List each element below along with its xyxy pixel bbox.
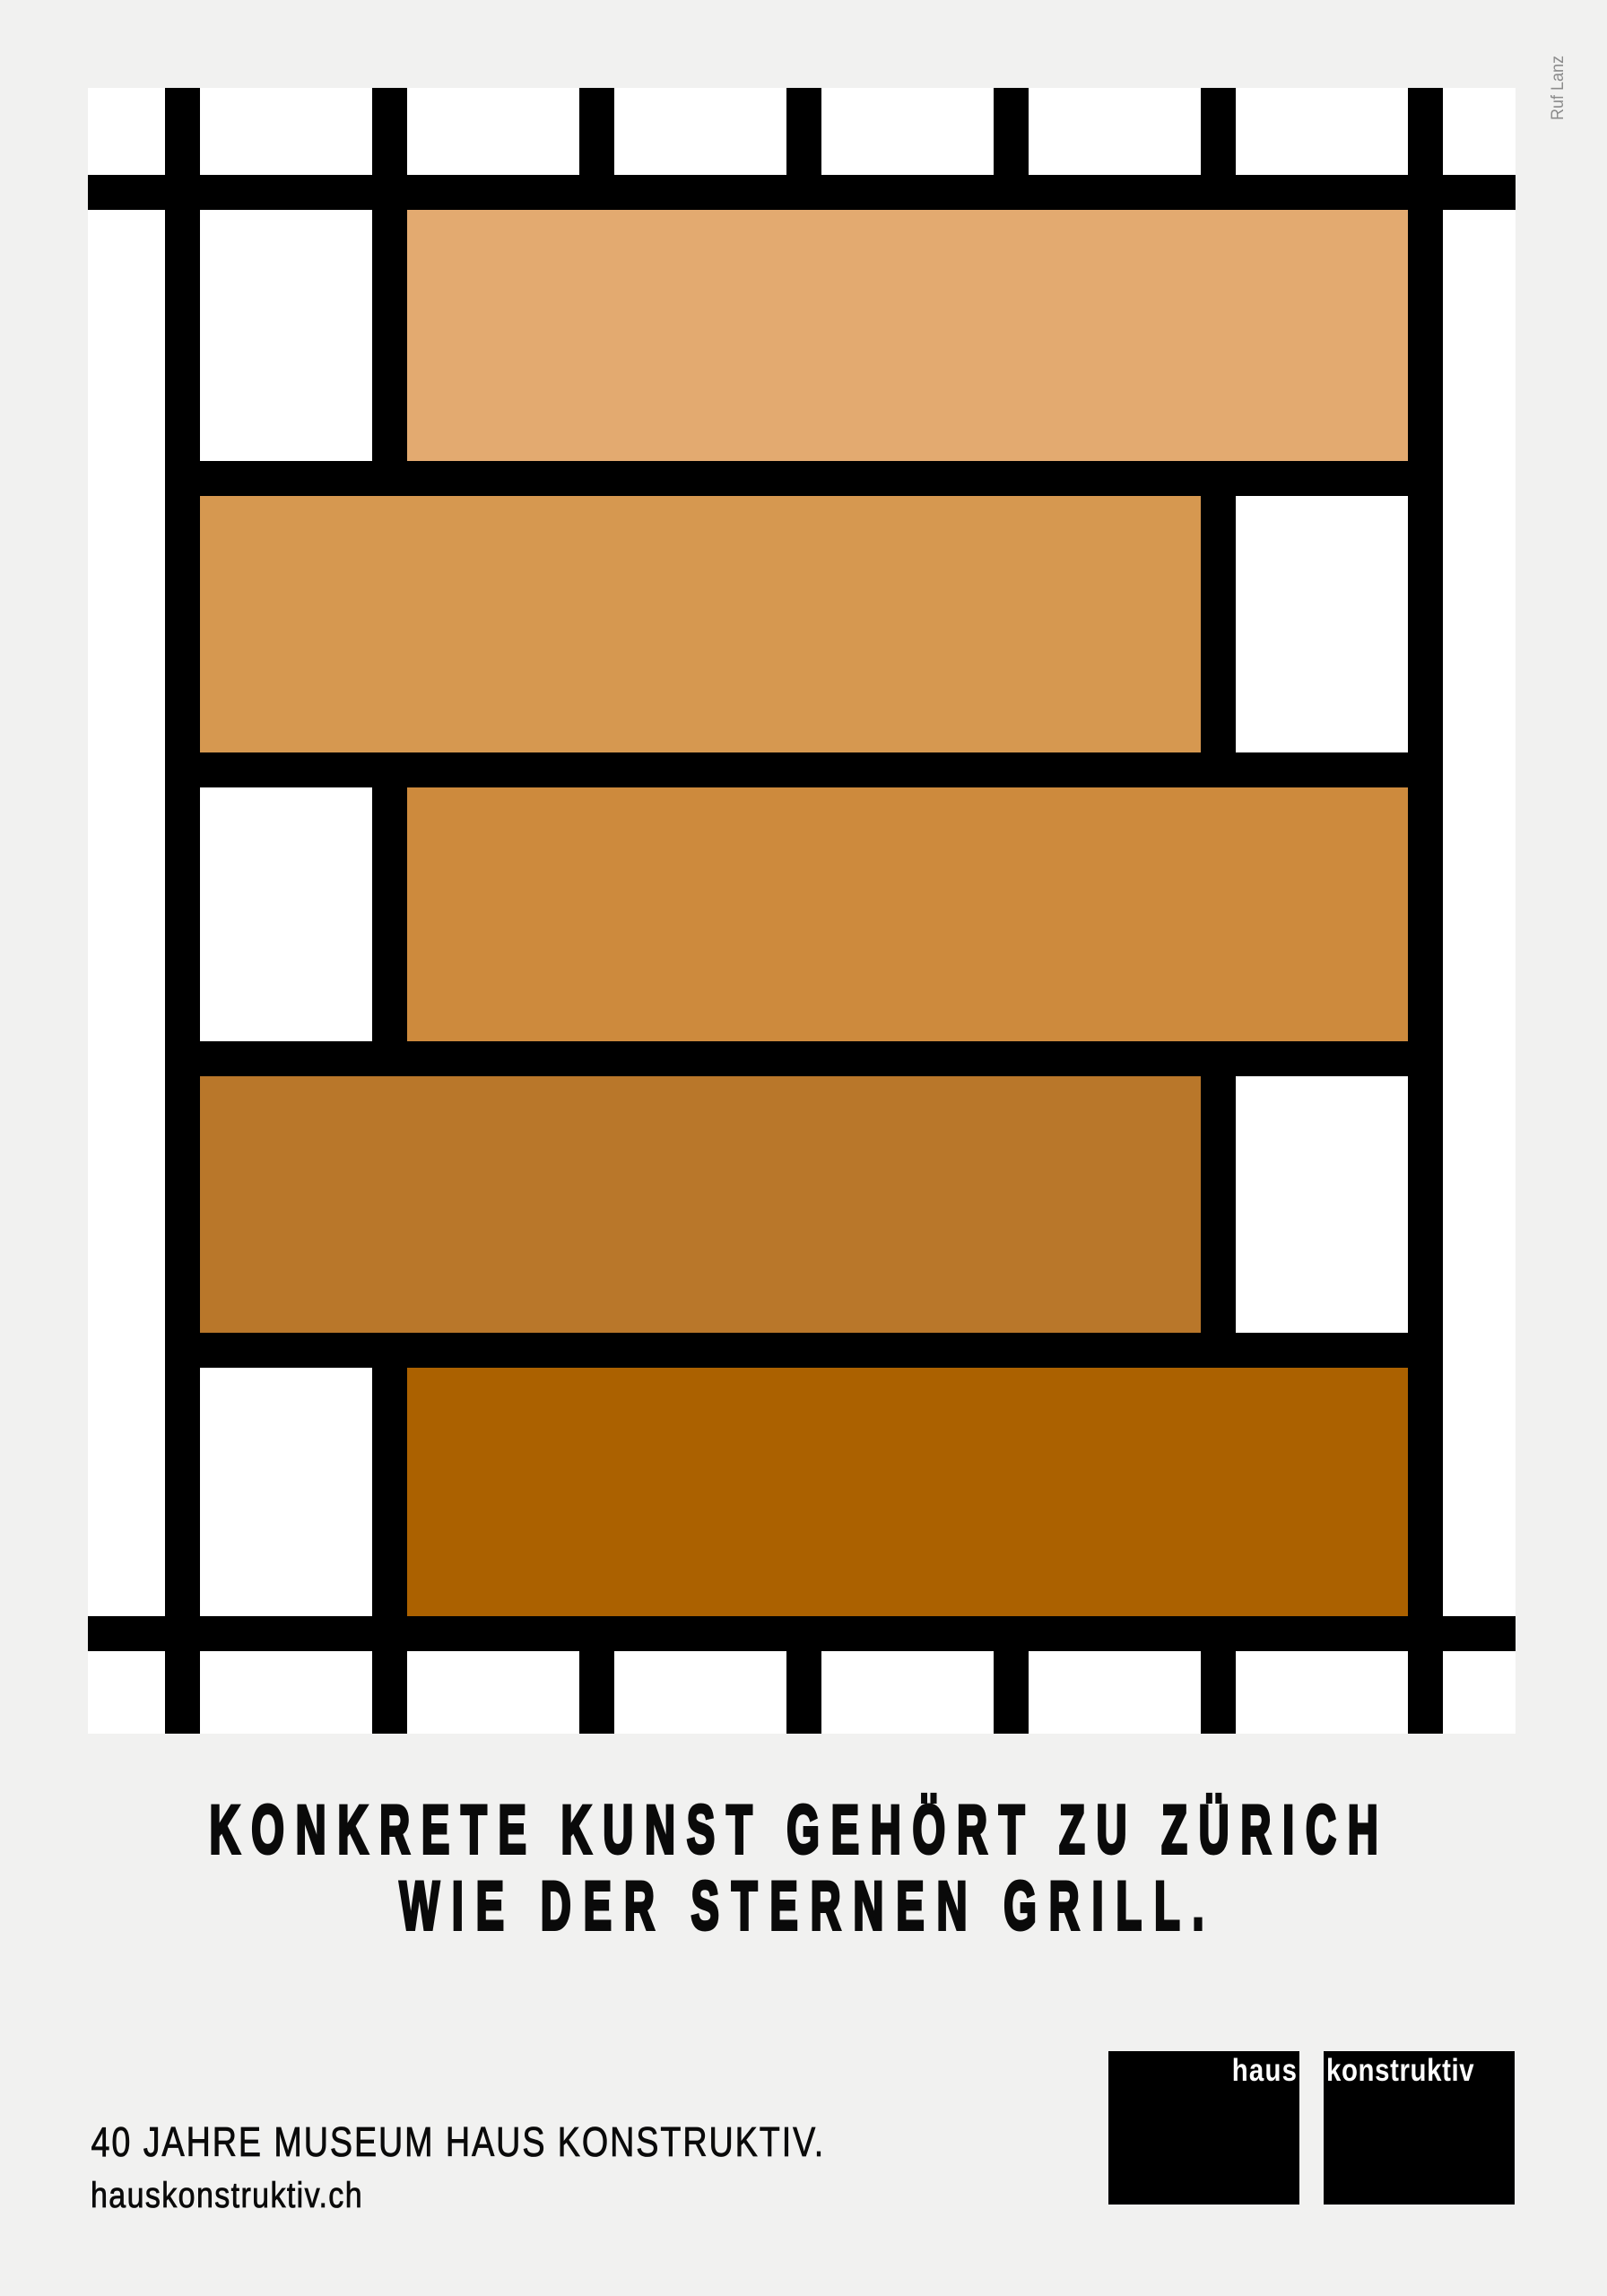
svg-text:haus: haus xyxy=(1232,2053,1297,2088)
svg-text:konstruktiv: konstruktiv xyxy=(1326,2053,1474,2088)
svg-text:40 JAHRE MUSEUM HAUS KONSTRUKT: 40 JAHRE MUSEUM HAUS KONSTRUKTIV. xyxy=(91,2118,824,2164)
svg-text:hauskonstruktiv.ch: hauskonstruktiv.ch xyxy=(91,2174,362,2214)
svg-text:KONKRETE KUNST GEHÖRT ZU ZÜRIC: KONKRETE KUNST GEHÖRT ZU ZÜRICH xyxy=(210,1793,1378,1868)
svg-text:Ruf Lanz: Ruf Lanz xyxy=(1549,56,1568,120)
